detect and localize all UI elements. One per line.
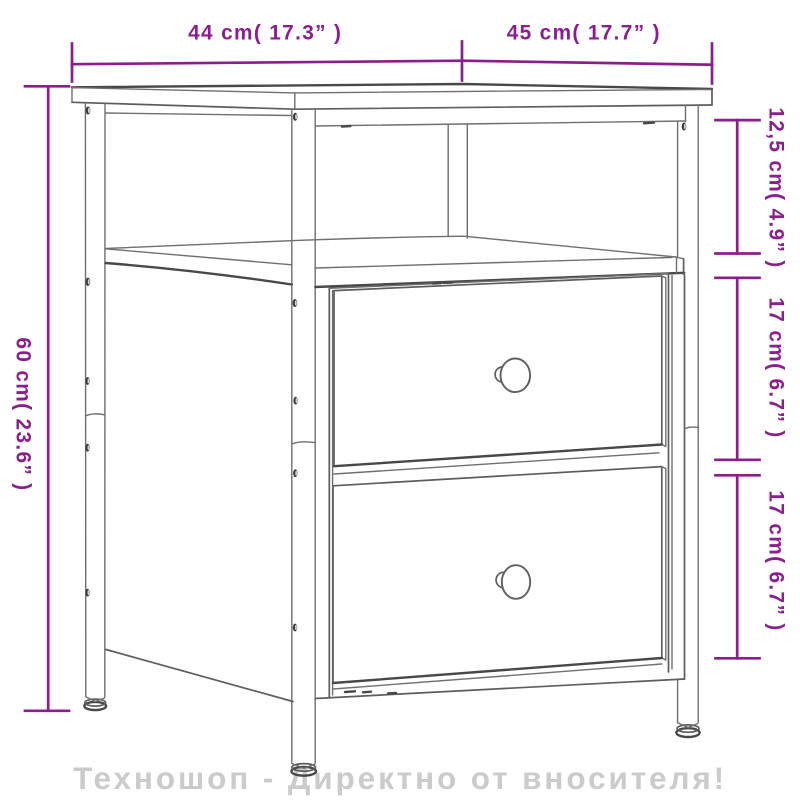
svg-text:44 cm( 17.3” ): 44 cm( 17.3” ) — [188, 21, 342, 44]
svg-text:17 cm( 6.7” ): 17 cm( 6.7” ) — [765, 297, 788, 438]
svg-text:45 cm( 17.7” ): 45 cm( 17.7” ) — [507, 21, 661, 44]
svg-text:17 cm( 6.7” ): 17 cm( 6.7” ) — [765, 490, 788, 631]
svg-text:60 cm( 23.6” ): 60 cm( 23.6” ) — [11, 337, 34, 491]
svg-text:Техношоп - Директно от вносите: Техношоп - Директно от вносителя! — [73, 760, 727, 796]
svg-text:12,5 cm( 4.9” ): 12,5 cm( 4.9” ) — [765, 107, 788, 268]
